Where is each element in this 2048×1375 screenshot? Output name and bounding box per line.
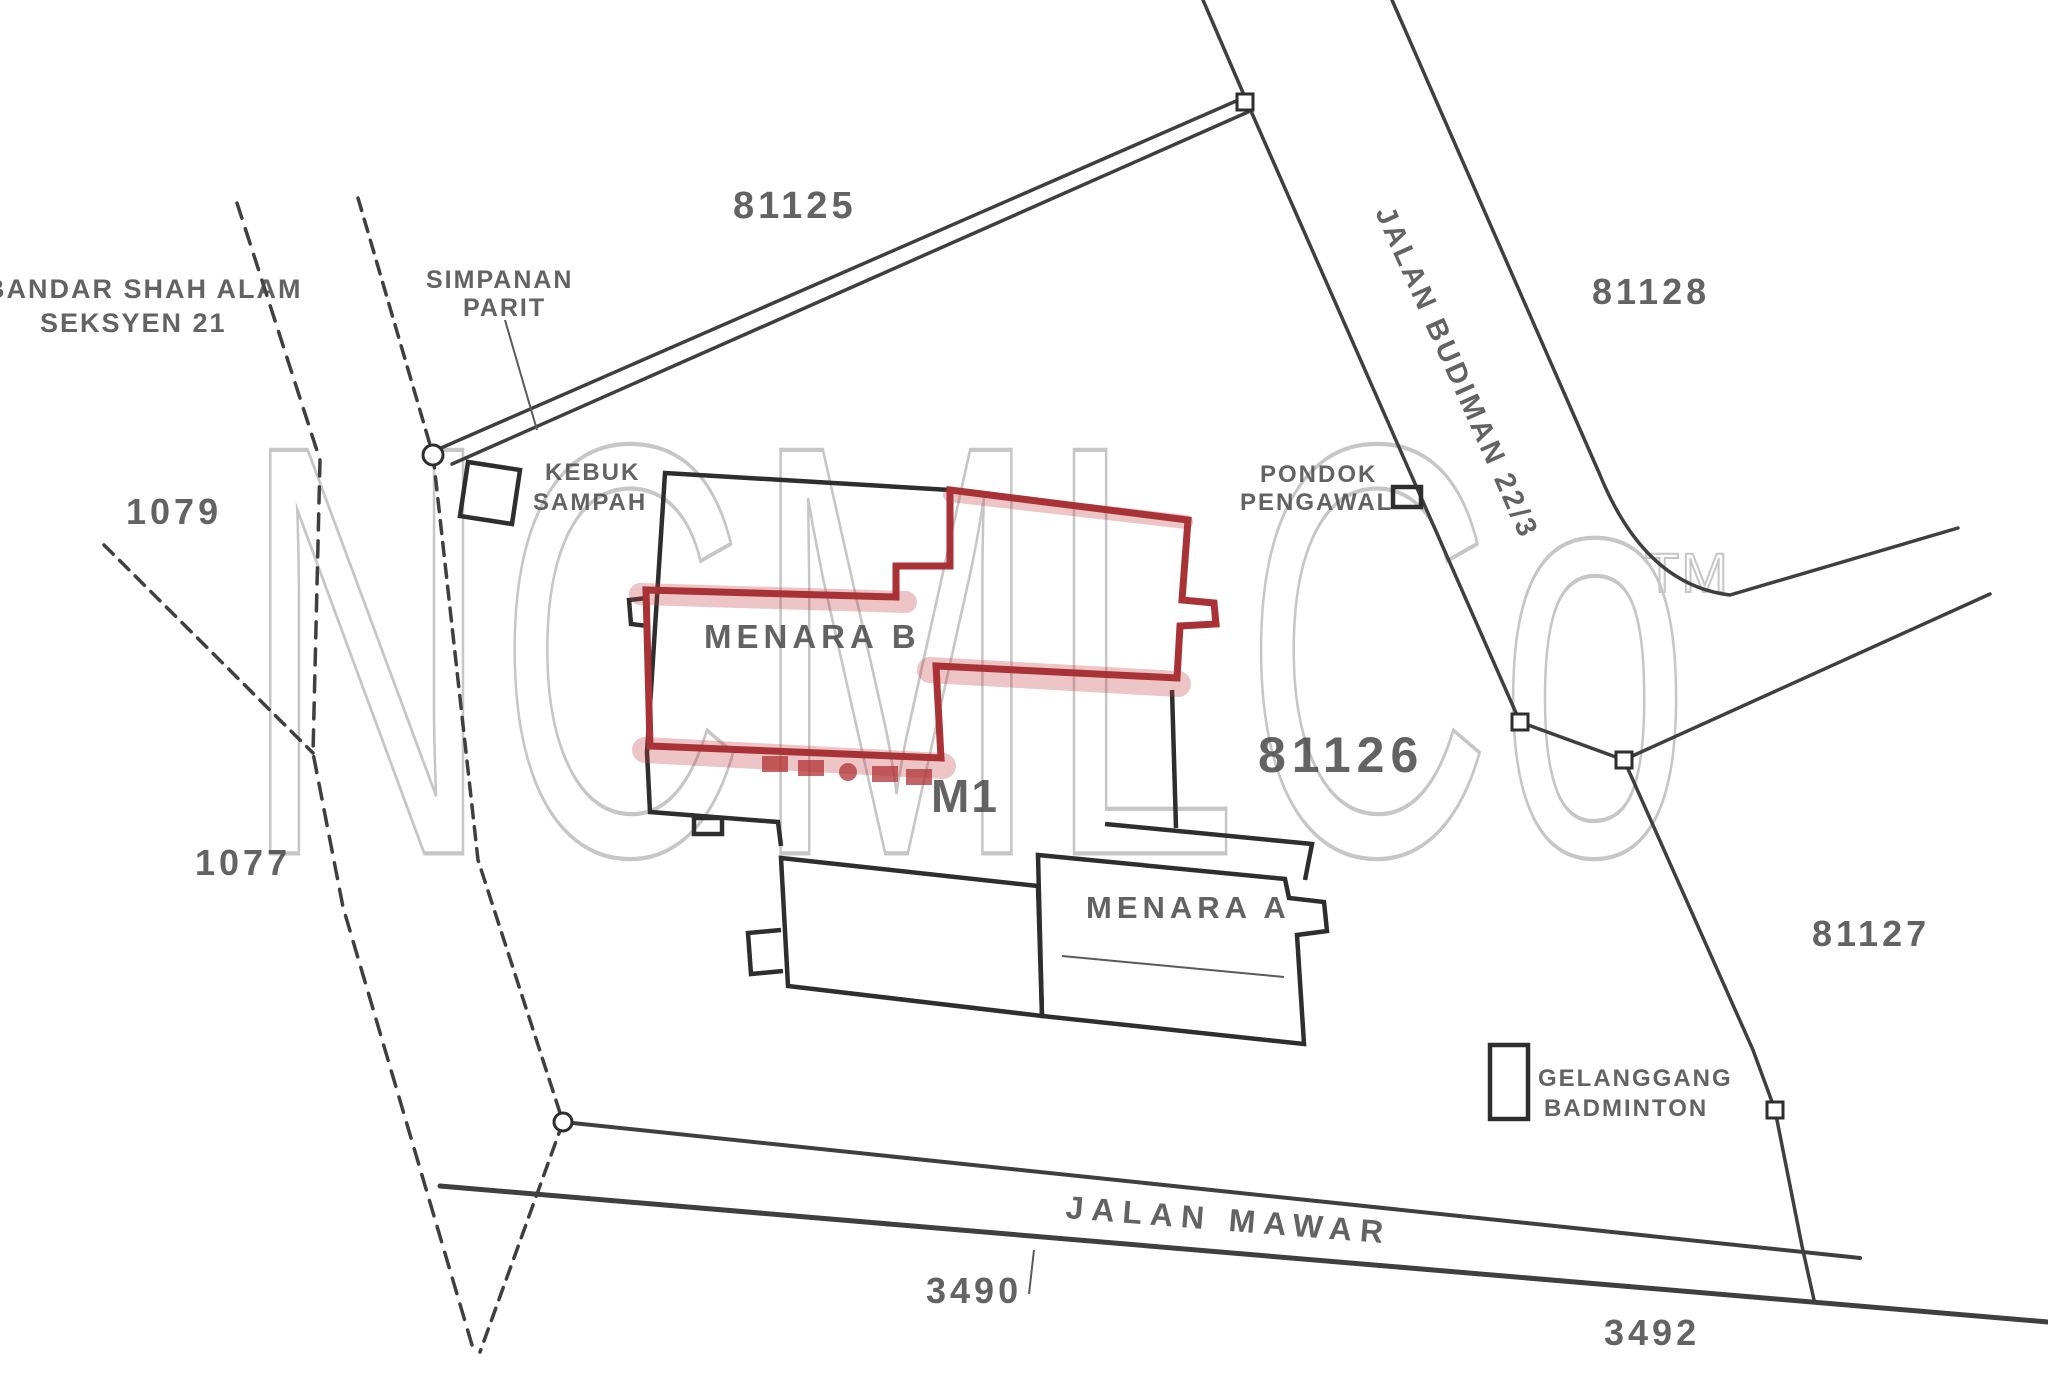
label-pondok-line2: PENGAWAL bbox=[1240, 489, 1393, 516]
label-kebuk-line1: KEBUK bbox=[545, 459, 640, 486]
label-pondok-line1: PONDOK bbox=[1260, 461, 1377, 488]
label-gelanggang-line2: BADMINTON bbox=[1544, 1095, 1708, 1122]
label-lot-81126: 81126 bbox=[1258, 727, 1424, 783]
lot-3490-tick-line bbox=[1029, 1250, 1034, 1294]
label-lot-81128: 81128 bbox=[1592, 271, 1710, 312]
label-lot-3492: 3492 bbox=[1604, 1312, 1700, 1353]
red-hatch-block bbox=[798, 760, 824, 776]
label-m1: M1 bbox=[931, 770, 999, 822]
label-kebuk-line2: SAMPAH bbox=[533, 489, 647, 516]
gelanggang-badminton-structure-outline bbox=[1490, 1045, 1528, 1119]
boundary-node-square bbox=[1767, 1102, 1783, 1118]
red-hatch-block bbox=[906, 769, 932, 785]
label-lot-81125: 81125 bbox=[733, 185, 857, 227]
jalan-mawar-north-line bbox=[563, 1122, 1860, 1258]
label-lot-81127: 81127 bbox=[1812, 913, 1930, 954]
label-gelanggang-line1: GELANGGANG bbox=[1538, 1065, 1733, 1092]
site-plan-drawing: NCMLCo TM bbox=[0, 0, 2048, 1375]
red-hatch-block bbox=[762, 756, 788, 772]
label-lot-1079: 1079 bbox=[126, 491, 222, 532]
label-menara-a: MENARA A bbox=[1086, 890, 1291, 925]
boundary-node-circle bbox=[554, 1113, 572, 1131]
label-menara-b: MENARA B bbox=[704, 618, 921, 655]
boundary-node-square bbox=[1512, 714, 1528, 730]
boundary-node-square bbox=[1237, 94, 1253, 110]
boundary-node-circle bbox=[423, 445, 443, 465]
label-simpanan-line1: SIMPANAN bbox=[426, 266, 573, 294]
boundary-node-square bbox=[1616, 752, 1632, 768]
label-lot-1077: 1077 bbox=[195, 842, 291, 883]
red-hatch-dot bbox=[839, 763, 857, 781]
label-bandar-line1: BANDAR SHAH ALAM bbox=[0, 274, 302, 304]
southwest-corner-dashed-line bbox=[480, 1122, 563, 1352]
label-lot-3490: 3490 bbox=[926, 1270, 1022, 1311]
red-hatch-block bbox=[872, 766, 898, 782]
label-simpanan-line2: PARIT bbox=[463, 294, 546, 322]
site-plan-page: NCMLCo TM bbox=[0, 0, 2048, 1375]
label-bandar-line2: SEKSYEN 21 bbox=[40, 308, 227, 338]
